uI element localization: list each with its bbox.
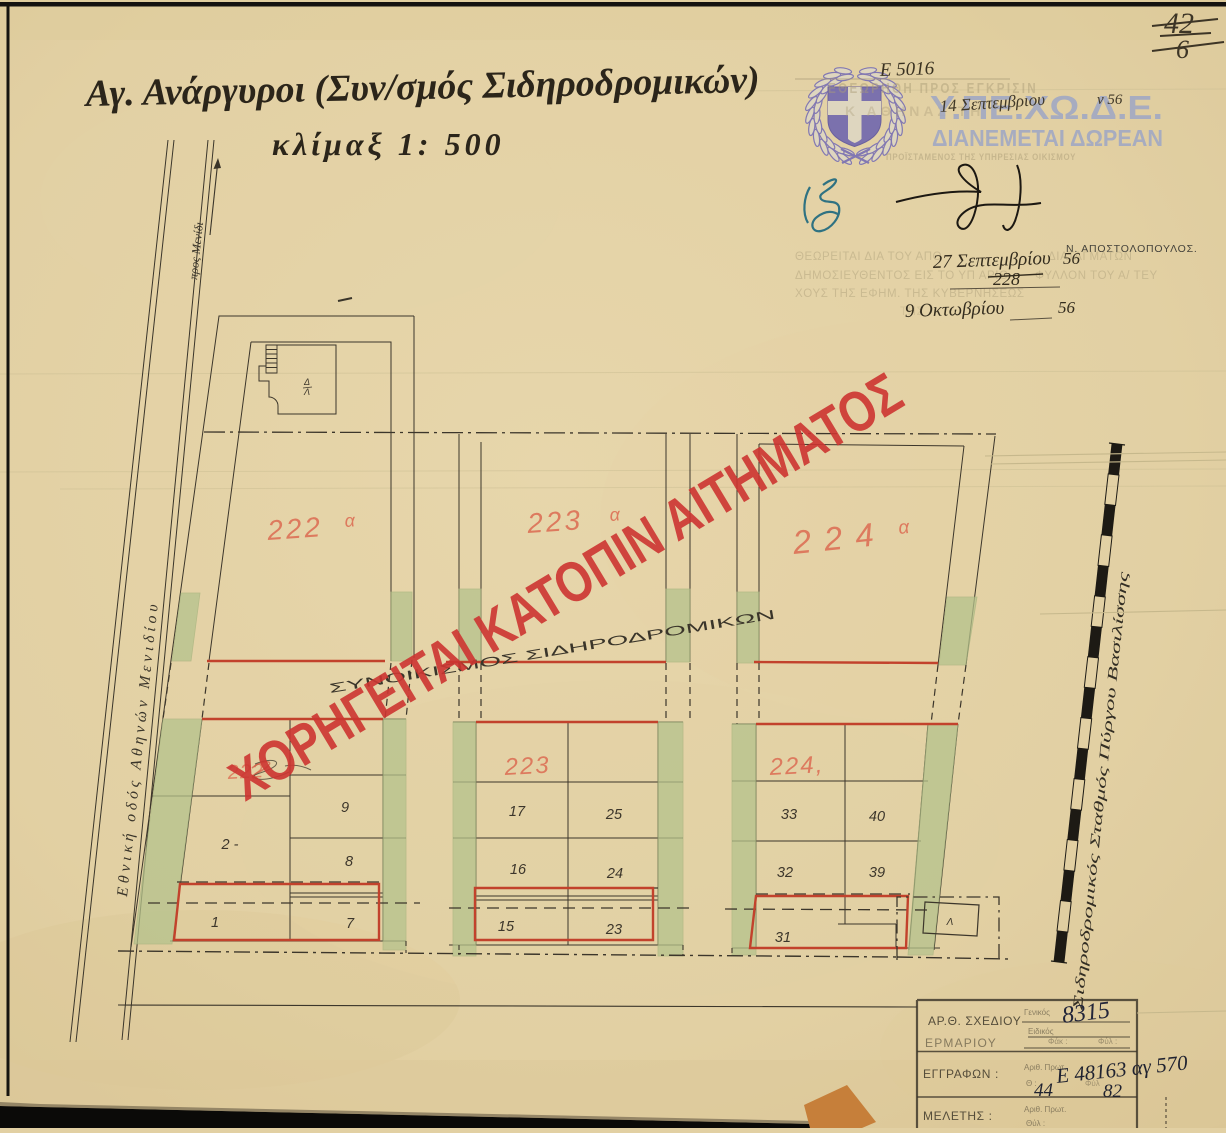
svg-text:7: 7: [346, 916, 355, 932]
svg-text:9 Οκτωβρίου: 9 Οκτωβρίου: [904, 298, 1004, 322]
svg-text:Θύλ :: Θύλ :: [1026, 1119, 1045, 1128]
svg-text:17: 17: [509, 804, 526, 820]
svg-text:ΠΡΟΪΣΤΑΜΕΝΟΣ ΤΗΣ ΥΠΗΡΕΣΙΑΣ ΟΙΚ: ΠΡΟΪΣΤΑΜΕΝΟΣ ΤΗΣ ΥΠΗΡΕΣΙΑΣ ΟΙΚΙΣΜΟΥ: [886, 152, 1076, 163]
svg-text:Γενικός: Γενικός: [1024, 1008, 1050, 1017]
svg-text:ΜΕΛΕΤΗΣ :: ΜΕΛΕΤΗΣ :: [923, 1109, 993, 1123]
svg-text:ΔΙΑΤΑΓΜΑΤΩΝ: ΔΙΑΤΑΓΜΑΤΩΝ: [1048, 251, 1133, 263]
svg-text:ΘΕΩΡΕΙΤΑΙ ΔΙΑ ΤΟΥ ΑΠΟ: ΘΕΩΡΕΙΤΑΙ ΔΙΑ ΤΟΥ ΑΠΟ: [795, 251, 942, 263]
svg-text:16: 16: [510, 862, 527, 878]
svg-text:44: 44: [1034, 1080, 1054, 1101]
svg-text:Δ: Δ: [303, 377, 310, 387]
svg-text:Φύλ :: Φύλ :: [1098, 1037, 1117, 1046]
svg-text:ΑΡ.Θ. ΣΧΕΔΙΟΥ: ΑΡ.Θ. ΣΧΕΔΙΟΥ: [928, 1014, 1021, 1028]
svg-text:82: 82: [1103, 1081, 1123, 1102]
svg-text:9: 9: [341, 800, 349, 816]
svg-text:222: 222: [265, 511, 324, 546]
svg-text:κλίμαξ 1: 500: κλίμαξ 1: 500: [272, 126, 505, 162]
svg-text:23: 23: [605, 922, 622, 938]
svg-text:8: 8: [345, 854, 353, 870]
svg-text:56: 56: [1063, 249, 1081, 268]
svg-text:2 -: 2 -: [221, 837, 239, 853]
svg-text:24: 24: [606, 866, 623, 882]
svg-text:Αριθ. Πρωτ.: Αριθ. Πρωτ.: [1024, 1105, 1066, 1114]
svg-text:33: 33: [781, 807, 797, 823]
svg-text:Ειδικός: Ειδικός: [1028, 1027, 1054, 1036]
svg-text:ΦΥΛΛΟΝ ΤΟΥ Α/ ΤΕΥ: ΦΥΛΛΟΝ ΤΟΥ Α/ ΤΕΥ: [1035, 270, 1158, 282]
svg-text:39: 39: [869, 865, 885, 881]
svg-text:40: 40: [869, 809, 885, 825]
svg-text:ν 56: ν 56: [1097, 92, 1123, 108]
svg-text:1: 1: [211, 915, 219, 931]
svg-text:Λ: Λ: [946, 917, 954, 928]
svg-text:32: 32: [777, 865, 793, 881]
svg-text:Φάκ :: Φάκ :: [1048, 1037, 1067, 1046]
svg-text:6: 6: [1176, 35, 1189, 64]
svg-text:ΔΗΜΟΣΙΕΥΘΕΝΤΟΣ ΕΙΣ ΤΟ ΥΠ ΑΡΙΘ: ΔΗΜΟΣΙΕΥΘΕΝΤΟΣ ΕΙΣ ΤΟ ΥΠ ΑΡΙΘ: [795, 270, 1009, 282]
svg-text:31: 31: [775, 930, 791, 946]
svg-text:56: 56: [1058, 298, 1076, 317]
svg-text:223: 223: [503, 752, 551, 781]
svg-text:223: 223: [525, 504, 584, 539]
svg-text:ΔΙΑΝΕΜΕΤΑΙ ΔΩΡΕΑΝ: ΔΙΑΝΕΜΕΤΑΙ ΔΩΡΕΑΝ: [932, 125, 1163, 151]
svg-text:ΕΡΜΑΡΙΟΥ: ΕΡΜΑΡΙΟΥ: [925, 1036, 997, 1050]
svg-text:228: 228: [993, 269, 1020, 289]
svg-text:25: 25: [605, 807, 623, 823]
svg-text:27 Σεπτεμβρίου: 27 Σεπτεμβρίου: [932, 248, 1051, 273]
svg-text:ΕΓΓΡΑΦΩΝ :: ΕΓΓΡΑΦΩΝ :: [923, 1067, 999, 1081]
svg-text:Λ: Λ: [303, 387, 310, 397]
svg-text:224,: 224,: [768, 751, 825, 781]
svg-text:Ε 5016: Ε 5016: [878, 58, 935, 81]
svg-text:15: 15: [498, 919, 515, 935]
